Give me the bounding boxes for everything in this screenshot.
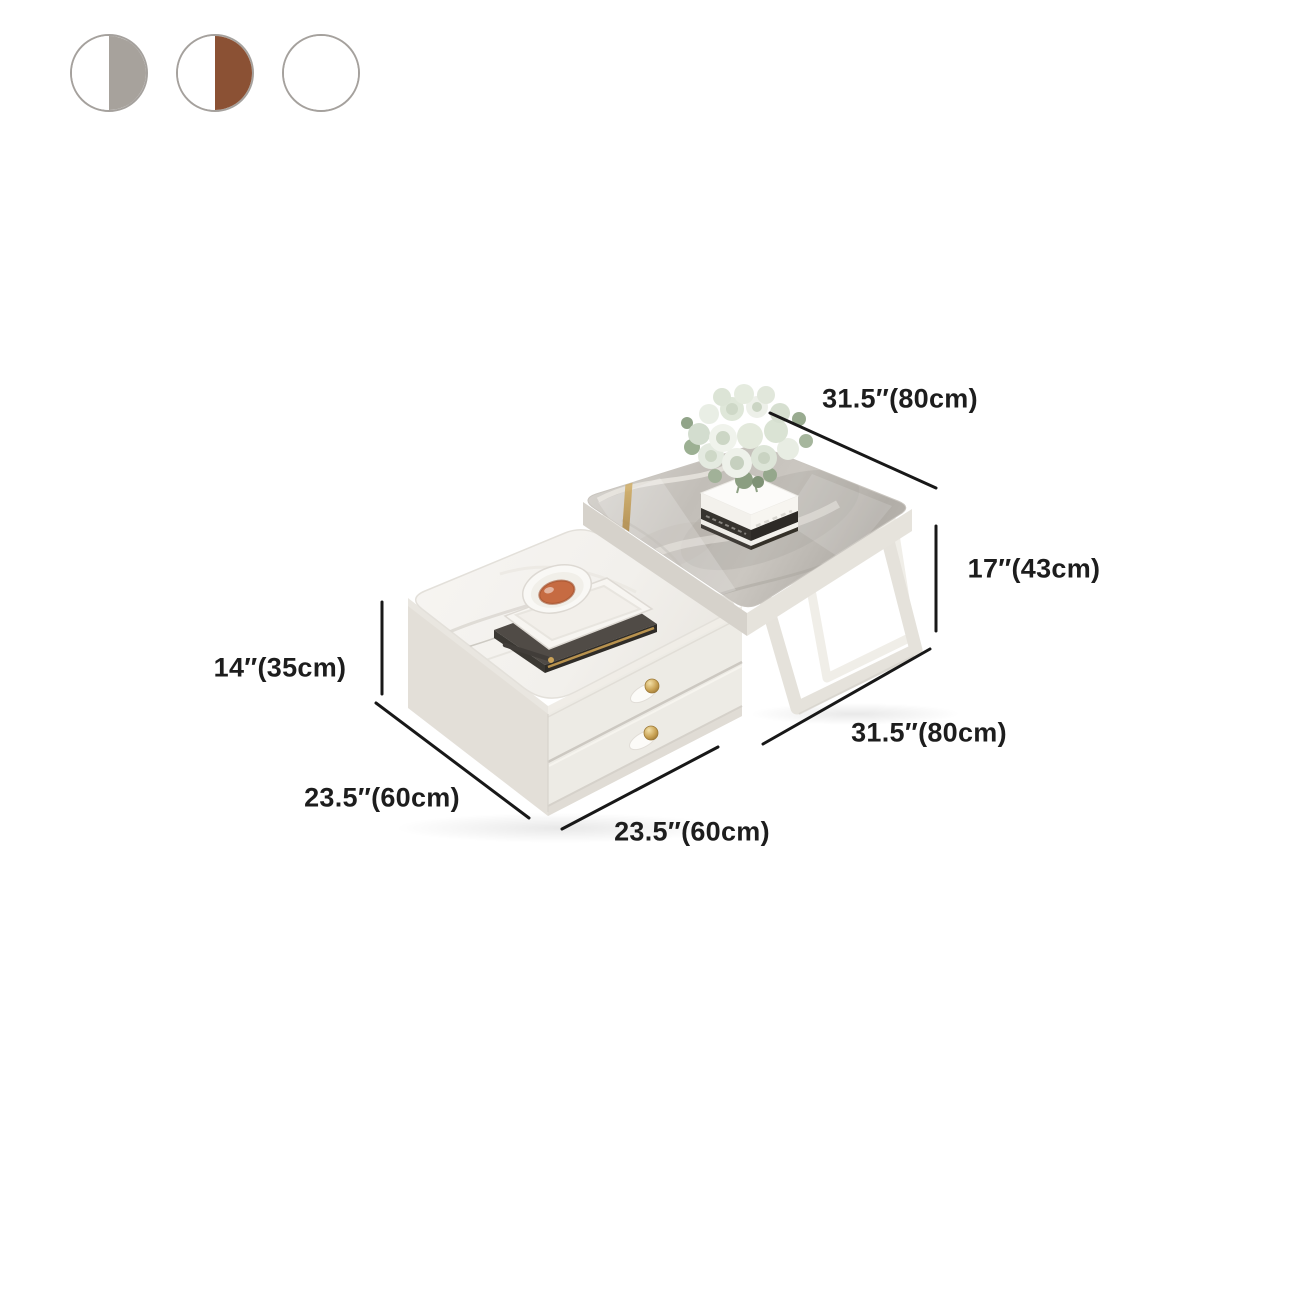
dimension-label-small-height: 14″(35cm) — [214, 653, 347, 684]
dimension-label-large-width: 31.5″(80cm) — [822, 384, 978, 415]
dimension-label-small-width: 23.5″(60cm) — [614, 817, 770, 848]
product-image-canvas: 31.5″(80cm) 17″(43cm) 31.5″(80cm) 14″(35… — [0, 0, 1300, 1300]
product-illustration — [0, 0, 1300, 1300]
dimension-label-large-depth: 31.5″(80cm) — [851, 718, 1007, 749]
dimension-label-small-depth: 23.5″(60cm) — [304, 783, 460, 814]
gold-knob-icon — [644, 726, 658, 740]
dimension-label-large-height: 17″(43cm) — [968, 554, 1101, 585]
gold-knob-icon — [645, 679, 659, 693]
pen-gold-tip — [548, 657, 554, 663]
